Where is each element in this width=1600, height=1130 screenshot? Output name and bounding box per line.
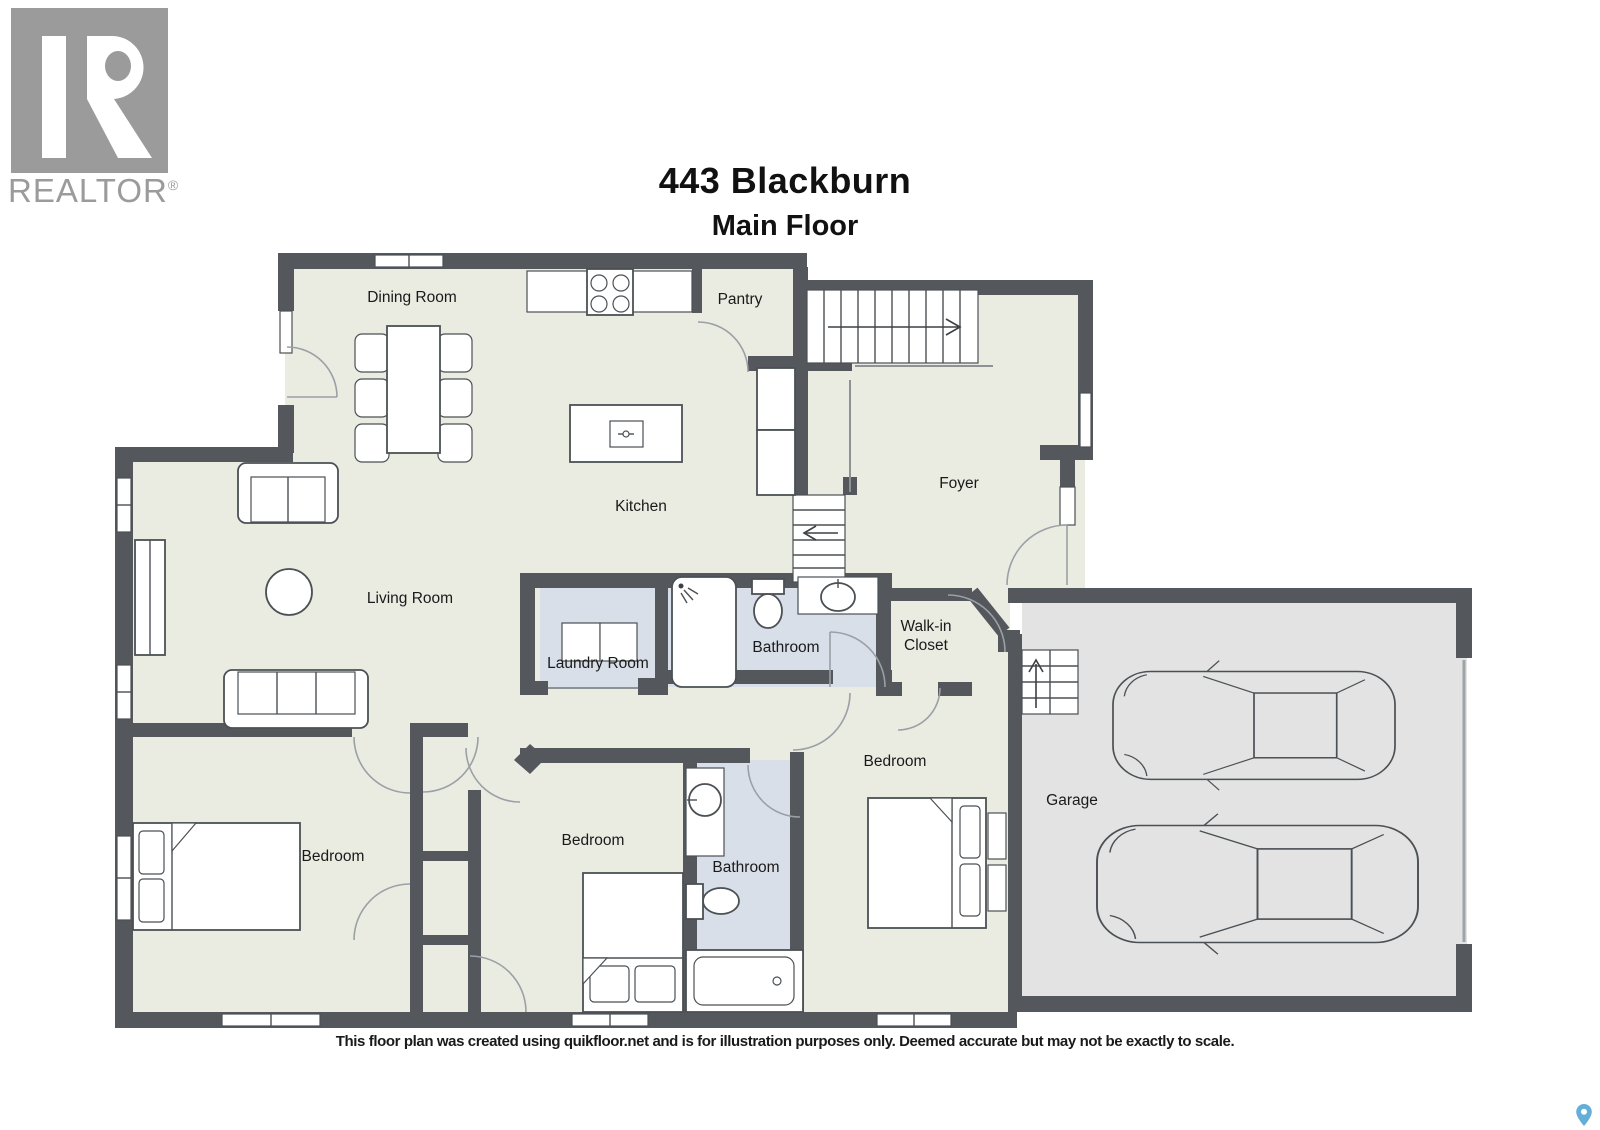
- loveseat: [238, 463, 338, 523]
- floor-plan-page: REALTOR® 443 Blackburn Main Floor: [0, 0, 1600, 1130]
- shower: [672, 577, 736, 687]
- kitchen-counter: [527, 269, 692, 315]
- room-label-kitchen: Kitchen: [615, 498, 667, 515]
- round-table: [266, 569, 312, 615]
- room-label-dining: Dining Room: [367, 289, 457, 306]
- room-label-bedroom-left: Bedroom: [302, 848, 365, 865]
- toilet-main: [752, 579, 784, 628]
- floor-plan-svg: Dining Room Pantry Kitchen Foyer Living …: [0, 0, 1600, 1130]
- room-label-garage: Garage: [1046, 792, 1098, 809]
- room-label-bathroom-main: Bathroom: [752, 639, 819, 656]
- dining-set: [355, 326, 472, 462]
- bathtub: [686, 950, 803, 1012]
- bed-middle: [583, 873, 683, 1012]
- room-label-walkin-2: Closet: [904, 637, 949, 654]
- vanity-main: [798, 577, 878, 614]
- bed-left: [133, 823, 300, 930]
- room-label-bedroom-middle: Bedroom: [562, 832, 625, 849]
- room-label-bedroom-right: Bedroom: [864, 753, 927, 770]
- room-label-laundry: Laundry Room: [547, 655, 649, 672]
- kitchen-island: [570, 405, 682, 462]
- dining-table: [387, 326, 440, 453]
- disclaimer-text: This floor plan was created using quikfl…: [0, 1033, 1570, 1050]
- fridge-cabinet: [757, 368, 795, 495]
- room-label-walkin-1: Walk-in: [900, 618, 951, 635]
- garage-staircase: [1022, 650, 1078, 714]
- bed-right: [868, 798, 1006, 928]
- room-label-bathroom-second: Bathroom: [712, 859, 779, 876]
- vanity-second: [686, 768, 724, 856]
- room-label-foyer: Foyer: [939, 475, 979, 492]
- main-staircase: [807, 290, 993, 366]
- map-pin-icon: [1576, 1104, 1592, 1126]
- sofa: [224, 670, 368, 728]
- room-label-living: Living Room: [367, 590, 453, 607]
- room-label-pantry: Pantry: [718, 291, 763, 308]
